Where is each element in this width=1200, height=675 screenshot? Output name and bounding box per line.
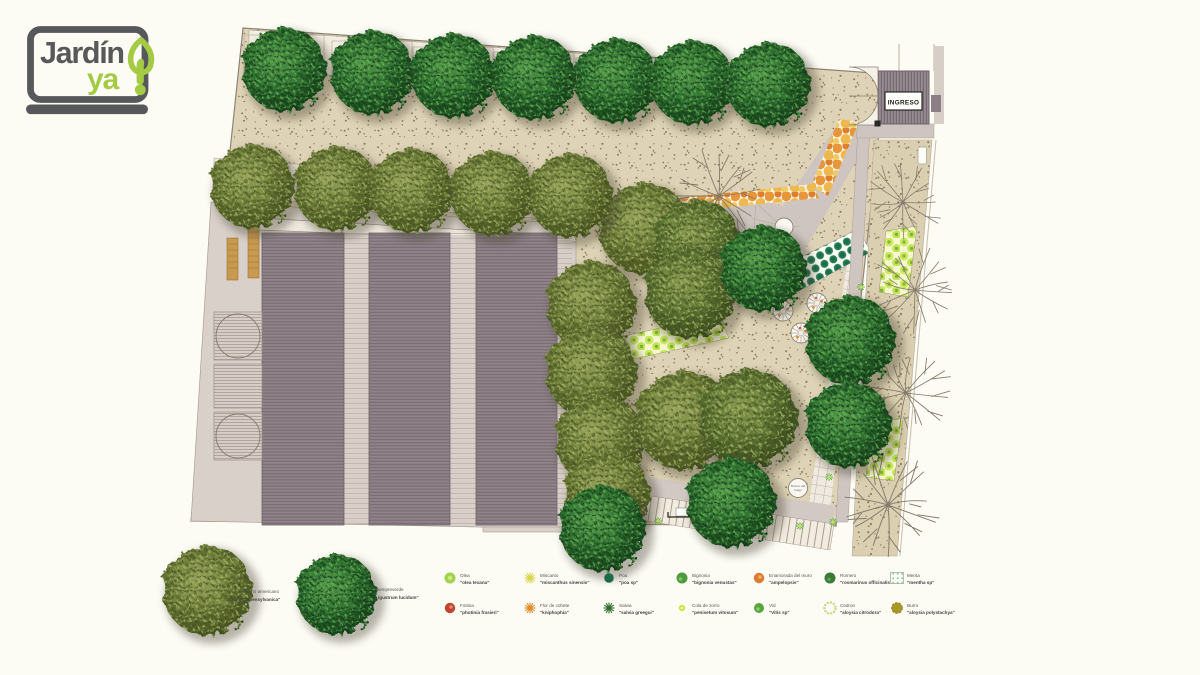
svg-text:"rosmarinus officinalis": "rosmarinus officinalis" xyxy=(840,580,892,585)
svg-text:Flor de cohete: Flor de cohete xyxy=(540,603,570,608)
svg-text:"aloysia polystachya": "aloysia polystachya" xyxy=(907,610,955,615)
svg-text:fuego: fuego xyxy=(794,488,802,492)
svg-text:"kniphophia": "kniphophia" xyxy=(540,610,569,615)
svg-text:Cola de zorro: Cola de zorro xyxy=(692,603,720,608)
svg-text:Fotinia: Fotinia xyxy=(460,603,474,608)
svg-text:Siempreverde: Siempreverde xyxy=(375,587,404,592)
svg-text:"miscanthus sinensis": "miscanthus sinensis" xyxy=(540,580,590,585)
svg-text:Olea: Olea xyxy=(460,573,470,578)
svg-text:"poa sp": "poa sp" xyxy=(619,580,638,585)
svg-text:ya: ya xyxy=(87,63,119,96)
svg-text:Menta: Menta xyxy=(907,573,920,578)
svg-text:Salvia: Salvia xyxy=(619,603,632,608)
svg-text:"aloysia citrodora": "aloysia citrodora" xyxy=(840,610,881,615)
svg-text:"mentha sp": "mentha sp" xyxy=(907,580,934,585)
svg-text:Vid: Vid xyxy=(769,603,776,608)
svg-text:Bignonia: Bignonia xyxy=(692,573,710,578)
svg-text:Romero: Romero xyxy=(840,573,857,578)
svg-text:"ampelopsis": "ampelopsis" xyxy=(769,580,799,585)
svg-text:INGRESO: INGRESO xyxy=(888,100,920,107)
svg-text:Fresno americano: Fresno americano xyxy=(242,589,279,594)
svg-text:"bignonia venustas": "bignonia venustas" xyxy=(692,580,737,585)
svg-text:"Vitis sp": "Vitis sp" xyxy=(769,610,790,615)
svg-text:Miscanto: Miscanto xyxy=(540,573,559,578)
svg-text:"penisetum vitosum": "penisetum vitosum" xyxy=(692,610,738,615)
svg-text:"salvia greegui": "salvia greegui" xyxy=(619,610,654,615)
svg-text:"fraxinus pensylvanica": "fraxinus pensylvanica" xyxy=(228,597,280,602)
svg-text:Enamorada del muro: Enamorada del muro xyxy=(769,573,812,578)
svg-text:Poa: Poa xyxy=(619,573,628,578)
svg-text:"Ligustrum lucidum": "Ligustrum lucidum" xyxy=(373,595,419,600)
svg-text:Cedron: Cedron xyxy=(840,603,856,608)
svg-text:Burro: Burro xyxy=(907,603,919,608)
svg-text:"olea texana": "olea texana" xyxy=(460,580,489,585)
svg-text:"photinia frasieri": "photinia frasieri" xyxy=(460,610,499,615)
